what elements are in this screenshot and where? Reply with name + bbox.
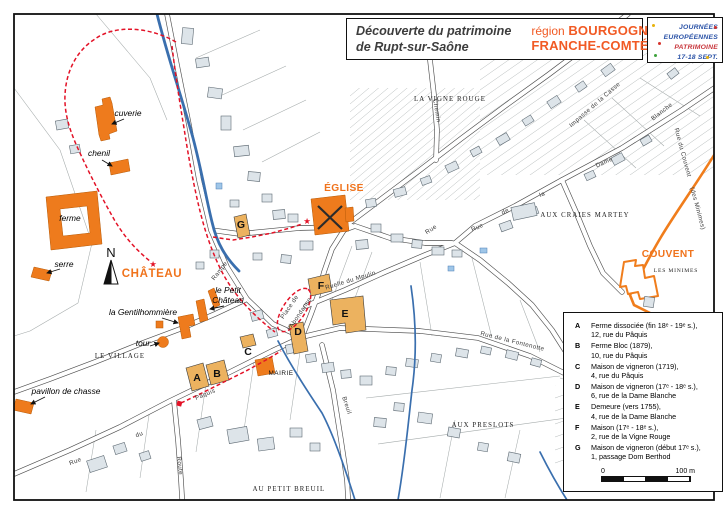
label-le-petit-chateau-2: Château <box>212 295 244 305</box>
arrow-pavillon-icon <box>31 397 45 404</box>
pond <box>448 266 454 271</box>
legend-letter: D <box>575 382 591 401</box>
legend-item-F: FMaison (17ᵉ - 18ᵉ s.),2, rue de la Vign… <box>575 423 717 442</box>
route-end-marker <box>176 401 182 407</box>
house-letter-B: B <box>213 368 221 380</box>
legend-letter: B <box>575 341 591 360</box>
label-aux-craies-martey: AUX CRAIES MARTEY <box>540 212 629 219</box>
street-rue-du-couvent: Rue du Couvent <box>673 127 693 177</box>
map-title: Découverte du patrimoine de Rupt-sur-Saô… <box>347 21 519 58</box>
label-la-vigne-rouge: LA VIGNE ROUGE <box>414 96 486 103</box>
title-line-2: de Rupt-sur-Saône <box>356 39 511 55</box>
arrow-tour-icon <box>150 343 159 346</box>
house-letter-C: C <box>244 346 252 358</box>
legend-text: Maison de vigneron (début 17ᵉ s.),1, pas… <box>591 443 701 462</box>
confetti-dot <box>658 42 661 45</box>
house-letter-F: F <box>318 280 325 292</box>
label-cuverie: cuverie <box>115 108 142 118</box>
label-couvent: COUVENT <box>642 249 695 260</box>
legend-text: Maison de vigneron (1719),4, rue du Pâqu… <box>591 362 679 381</box>
label-le-village: LE VILLAGE <box>95 353 145 360</box>
confetti-dot <box>706 56 709 59</box>
building-tour <box>158 337 169 348</box>
label-le-petit-chateau-1: le Petit <box>215 285 241 295</box>
building-pavillon-de-chasse <box>13 399 34 414</box>
region-logo: région BOURGOGNE FRANCHE-COMTÉ <box>519 24 656 53</box>
jep-logo: JOURNÉES EUROPÉENNES PATRIMOINE 17-18 SE… <box>647 17 723 63</box>
scale-bar-graphic <box>601 476 691 482</box>
label-tour: tour <box>136 338 152 348</box>
region-name-2: FRANCHE-COMTÉ <box>531 38 648 53</box>
scale-end: 100 m <box>676 468 695 475</box>
scale-bar: 0 100 m <box>601 468 697 482</box>
legend-letter: C <box>575 362 591 381</box>
house-letter-D: D <box>294 326 302 338</box>
legend-item-B: BFerme Bloc (1879),10, rue du Pâquis <box>575 341 717 360</box>
legend-item-D: DMaison de vigneron (17ᵉ - 18ᵉ s.),6, ru… <box>575 382 717 401</box>
north-arrow-icon: N <box>104 245 118 284</box>
scale-start: 0 <box>601 468 605 475</box>
building-chenil <box>109 159 130 175</box>
label-eglise: ÉGLISE <box>324 181 364 194</box>
building-serre <box>31 267 52 281</box>
jep-line-1: JOURNÉES <box>648 23 718 33</box>
building-couvent <box>620 260 658 299</box>
legend-text: Maison (17ᵉ - 18ᵉ s.),2, rue de la Vigne… <box>591 423 670 442</box>
legend-letter: E <box>575 402 591 421</box>
street-breuil: Breuil <box>340 396 352 416</box>
confetti-dot <box>652 24 655 27</box>
heritage-map-page: N CHÂTEAUÉGLISECOUVENTcuveriechenilferme… <box>0 0 728 515</box>
arrow-gentilhommiere-icon <box>162 318 178 323</box>
street-rue-2: Rue <box>424 223 438 236</box>
building-cuverie <box>95 97 117 141</box>
region-name-1: BOURGOGNE <box>568 23 656 38</box>
route-star-chateau: ★ <box>149 259 157 269</box>
label-serre: serre <box>54 259 73 269</box>
street-route: Route <box>175 456 184 475</box>
house-letter-A: A <box>193 372 201 384</box>
region-prefix: région <box>531 24 564 38</box>
legend-letter: G <box>575 443 591 462</box>
stream-south <box>398 286 415 500</box>
house-letter-G: G <box>237 219 245 231</box>
legend-text: Demeure (vers 1755),4, rue de la Dame Bl… <box>591 402 676 421</box>
label-ferme: ferme <box>59 213 81 223</box>
building-eglise-apse <box>345 207 354 222</box>
label-pavillon-de-chasse: pavillon de chasse <box>31 386 101 396</box>
street-rue: Rue <box>68 456 82 467</box>
legend-text: Ferme Bloc (1879),10, rue du Pâquis <box>591 341 653 360</box>
label-aux-preslots: AUX PRESLOTS <box>452 422 515 429</box>
legend-item-G: GMaison de vigneron (début 17ᵉ s.),1, pa… <box>575 443 717 462</box>
street-des-minimes: (des Minimes) <box>688 186 706 230</box>
legend-text: Maison de vigneron (17ᵉ - 18ᵉ s.),6, rue… <box>591 382 698 401</box>
building-gentilhommiere-annex <box>156 321 163 328</box>
label-la-gentilhommiere: la Gentilhommière <box>109 307 177 317</box>
label-chenil: chenil <box>88 148 111 158</box>
legend-items: AFerme dissociée (fin 18ᵉ - 19ᵉ s.),12, … <box>575 321 717 462</box>
legend-item-C: CMaison de vigneron (1719),4, rue du Pâq… <box>575 362 717 381</box>
legend-box: AFerme dissociée (fin 18ᵉ - 19ᵉ s.),12, … <box>563 312 723 492</box>
legend-letter: A <box>575 321 591 340</box>
title-box: Découverte du patrimoine de Rupt-sur-Saô… <box>346 18 643 60</box>
label-les-minimes: LES MINIMES <box>654 268 698 274</box>
pond <box>480 248 487 253</box>
legend-item-A: AFerme dissociée (fin 18ᵉ - 19ᵉ s.),12, … <box>575 321 717 340</box>
building-couvent-annex <box>643 296 654 307</box>
legend-text: Ferme dissociée (fin 18ᵉ - 19ᵉ s.),12, r… <box>591 321 697 340</box>
building-eglise <box>311 195 349 235</box>
pond <box>216 183 222 189</box>
title-line-1: Découverte du patrimoine <box>356 23 511 39</box>
street-du: du <box>135 430 145 439</box>
stream-mairie <box>278 341 355 500</box>
confetti-dot <box>654 54 657 57</box>
house-letter-E: E <box>341 308 348 320</box>
route-star-eglise: ★ <box>303 216 311 226</box>
confetti-dot <box>714 26 717 29</box>
legend-letter: F <box>575 423 591 442</box>
legend-item-E: EDemeure (vers 1755),4, rue de la Dame B… <box>575 402 717 421</box>
label-au-petit-breuil: AU PETIT BREUIL <box>253 486 326 493</box>
north-letter: N <box>106 245 115 260</box>
label-mairie: MAIRIE <box>268 370 293 377</box>
